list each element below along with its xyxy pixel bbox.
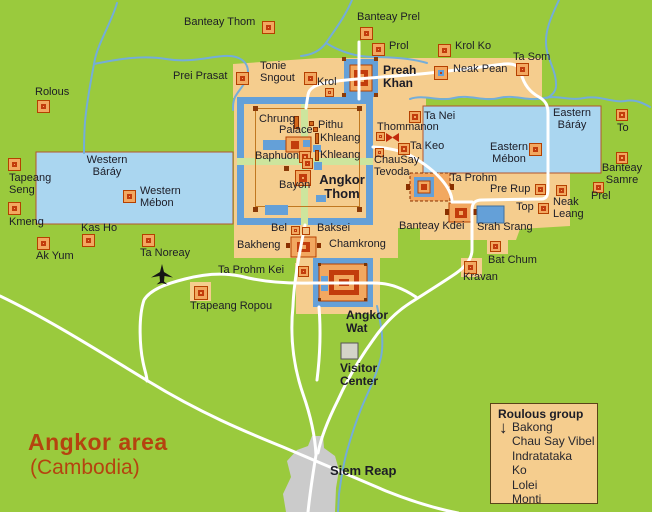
label-ta-keo: Ta Keo <box>410 140 444 152</box>
label-eastern-baray: Eastern Báráy <box>553 107 591 131</box>
label-angkor-wat: Angkor Wat <box>346 309 388 335</box>
marker-neak-pean[interactable] <box>434 66 448 80</box>
banteay-kdei-center <box>459 211 463 215</box>
angkor-wat-dot-ne <box>364 263 367 266</box>
label-bel: Bel <box>271 222 287 234</box>
label-trapeang-ropou: Trapeang Ropou <box>190 300 272 312</box>
preah-khan-corner-sw <box>342 93 346 97</box>
marker-ta-som[interactable] <box>516 63 529 76</box>
ta-prohm-core <box>421 184 427 190</box>
bakheng-dot-west <box>286 243 290 248</box>
marker-bayon-center[interactable] <box>302 158 313 169</box>
marker-top[interactable] <box>538 203 549 214</box>
label-banteay-thom: Banteay Thom <box>184 16 255 28</box>
map-title: Angkor area <box>28 429 168 456</box>
label-to: To <box>617 122 629 134</box>
label-bakheng: Bakheng <box>237 239 280 251</box>
label-banteay-prel: Banteay Prel <box>357 11 420 23</box>
pond-east <box>314 162 322 170</box>
marker-khleang-north-bar <box>315 133 319 144</box>
label-siem-reap: Siem Reap <box>330 464 396 478</box>
label-ta-prohm-kei: Ta Prohm Kei <box>218 264 284 276</box>
river-siem-reap-upper <box>410 97 650 107</box>
angkor-wat-dot-nw <box>318 263 321 266</box>
palace-pond <box>303 140 310 147</box>
label-preah-khan: Preah Khan <box>383 64 416 90</box>
label-krol-ko: Krol Ko <box>455 40 491 52</box>
marker-kmeng[interactable] <box>8 202 21 215</box>
banteay-kdei-gate-east <box>473 209 477 215</box>
ta-prohm-gate-east <box>450 184 454 190</box>
marker-ak-yum[interactable] <box>37 237 50 250</box>
marker-bat-chum[interactable] <box>490 241 501 252</box>
label-angkor-thom: Angkor Thom <box>319 173 365 202</box>
road-angkor-wat-south <box>317 307 320 380</box>
marker-western-mebon[interactable] <box>123 190 136 203</box>
preah-khan-corner-nw <box>342 57 346 61</box>
marker-baphuon-west-dot <box>284 166 289 171</box>
label-kas-ho: Kas Ho <box>81 222 117 234</box>
ta-prohm-gate-west <box>406 184 410 190</box>
banteay-kdei-gate-west <box>445 209 449 215</box>
river-northwest <box>84 3 117 153</box>
label-khleang: Khleang <box>320 132 360 144</box>
label-thommanon: Thommanon <box>377 121 439 133</box>
legend-items: BakongChau Say VibelIndratatakaKoLoleiMo… <box>512 420 595 506</box>
bakheng-dot-east <box>317 243 321 248</box>
label-prel: Prel <box>591 190 611 202</box>
marker-tapeang-seng[interactable] <box>8 158 21 171</box>
legend-title: Roulous group <box>498 407 583 421</box>
label-banteay-samre: Banteay Samre <box>602 162 642 186</box>
angkor-wat-library-north <box>321 276 328 282</box>
marker-banteay-thom[interactable] <box>262 21 275 34</box>
marker-tonie-sngout[interactable] <box>304 72 317 85</box>
marker-angkor-thom-wall-se <box>357 207 362 212</box>
label-srah-srang: Srah Srang <box>477 221 533 233</box>
angkor-area-map: Banteay ThomBanteay PrelProlKrol KoTa So… <box>0 0 652 512</box>
angkor-wat-dot-se <box>364 298 367 301</box>
label-tonie-sngout: Tonie Sngout <box>260 60 295 84</box>
label-chamkrong: Chamkrong <box>329 238 386 250</box>
label-chausay-tevoda: ChauSay Tevoda <box>374 154 419 178</box>
label-neak-pean: Neak Pean <box>453 63 507 75</box>
marker-angkor-thom-wall-ne <box>357 106 362 111</box>
marker-khleang-south-bar <box>315 150 319 161</box>
marker-ta-prohm-kei[interactable] <box>298 266 309 277</box>
road-west-approach <box>140 274 313 381</box>
angkor-wat-dot-sw <box>318 298 321 301</box>
marker-thommanon[interactable] <box>376 132 385 141</box>
preah-khan-corner-ne <box>374 57 378 61</box>
marker-to[interactable] <box>616 109 628 121</box>
marker-trapeang-ropou[interactable] <box>194 286 208 300</box>
marker-bel-east[interactable] <box>302 227 310 235</box>
label-western-mebon: Western Mébon <box>140 185 181 209</box>
label-visitor-center: Visitor Center <box>340 362 378 388</box>
label-prol: Prol <box>389 40 409 52</box>
label-kmeng: Kmeng <box>9 216 44 228</box>
marker-angkor-thom-wall-sw <box>253 207 258 212</box>
label-khleang: Khleang <box>320 149 360 161</box>
label-banteay-kdei: Banteay Kdei <box>399 220 464 232</box>
legend-item-ko: Ko <box>512 463 595 477</box>
airport-icon <box>151 264 173 285</box>
south-arrow-icon: ↓ <box>499 418 508 438</box>
legend-item-indratataka: Indratataka <box>512 449 595 463</box>
marker-prei-prasat[interactable] <box>236 72 249 85</box>
label-western-baray: Western Báráy <box>87 154 128 178</box>
label-bayon: Bayon <box>279 179 310 191</box>
label-pre-rup: Pre Rup <box>490 183 530 195</box>
marker-banteay-prel[interactable] <box>360 27 373 40</box>
legend-item-lolei: Lolei <box>512 478 595 492</box>
label-ta-som: Ta Som <box>513 51 550 63</box>
legend-box: Roulous group ↓ BakongChau Say VibelIndr… <box>490 403 598 504</box>
marker-krol-ko[interactable] <box>438 44 451 57</box>
label-ak-yum: Ak Yum <box>36 250 74 262</box>
label-ta-nei: Ta Nei <box>424 110 455 122</box>
label-prei-prasat: Prei Prasat <box>173 70 227 82</box>
marker-prol[interactable] <box>372 43 385 56</box>
label-pithu: Pithu <box>318 119 343 131</box>
label-ta-noreay: Ta Noreay <box>140 247 190 259</box>
label-rolous: Rolous <box>35 86 69 98</box>
label-bat-chum: Bat Chum <box>488 254 537 266</box>
marker-ta-noreay[interactable] <box>142 234 155 247</box>
marker-angkor-thom-wall-nw <box>253 106 258 111</box>
marker-rolous[interactable] <box>37 100 50 113</box>
angkor-wat-library-south <box>321 285 328 291</box>
label-tapeang-seng: Tapeang Seng <box>9 172 51 196</box>
label-kravan: Kravan <box>463 271 498 283</box>
label-baksei: Baksei <box>317 222 350 234</box>
pond-southwest <box>265 205 288 215</box>
marker-pre-rup[interactable] <box>535 184 546 195</box>
marker-eastern-mebon[interactable] <box>529 143 542 156</box>
label-baphuon: Baphuon <box>255 150 299 162</box>
legend-item-monti: Monti <box>512 492 595 506</box>
palace-core <box>291 141 299 149</box>
legend-item-bakong: Bakong <box>512 420 595 434</box>
river-northeast <box>546 0 559 98</box>
marker-neak-leang[interactable] <box>556 185 567 196</box>
title-block: Angkor area (Cambodia) <box>28 429 168 480</box>
pond-royal-palace <box>263 140 286 150</box>
marker-kas-ho[interactable] <box>82 234 95 247</box>
western-baray-water <box>36 152 233 224</box>
label-neak-leang: Neak Leang <box>553 196 584 220</box>
legend-item-chau-say-vibel: Chau Say Vibel <box>512 434 595 448</box>
map-subtitle: (Cambodia) <box>30 456 168 480</box>
marker-bel[interactable] <box>291 226 300 235</box>
label-top: Top <box>516 201 534 213</box>
preah-khan-corner-se <box>374 93 378 97</box>
label-palace: Palace <box>279 124 313 136</box>
label-eastern-mebon: Eastern Mébon <box>490 141 528 165</box>
label-ta-prohm: Ta Prohm <box>450 172 497 184</box>
label-krol: Krol <box>317 76 337 88</box>
visitor-center-building[interactable] <box>341 343 358 359</box>
river-north-center <box>301 0 352 56</box>
marker-krol[interactable] <box>325 88 334 97</box>
river-north-branch <box>94 56 248 110</box>
